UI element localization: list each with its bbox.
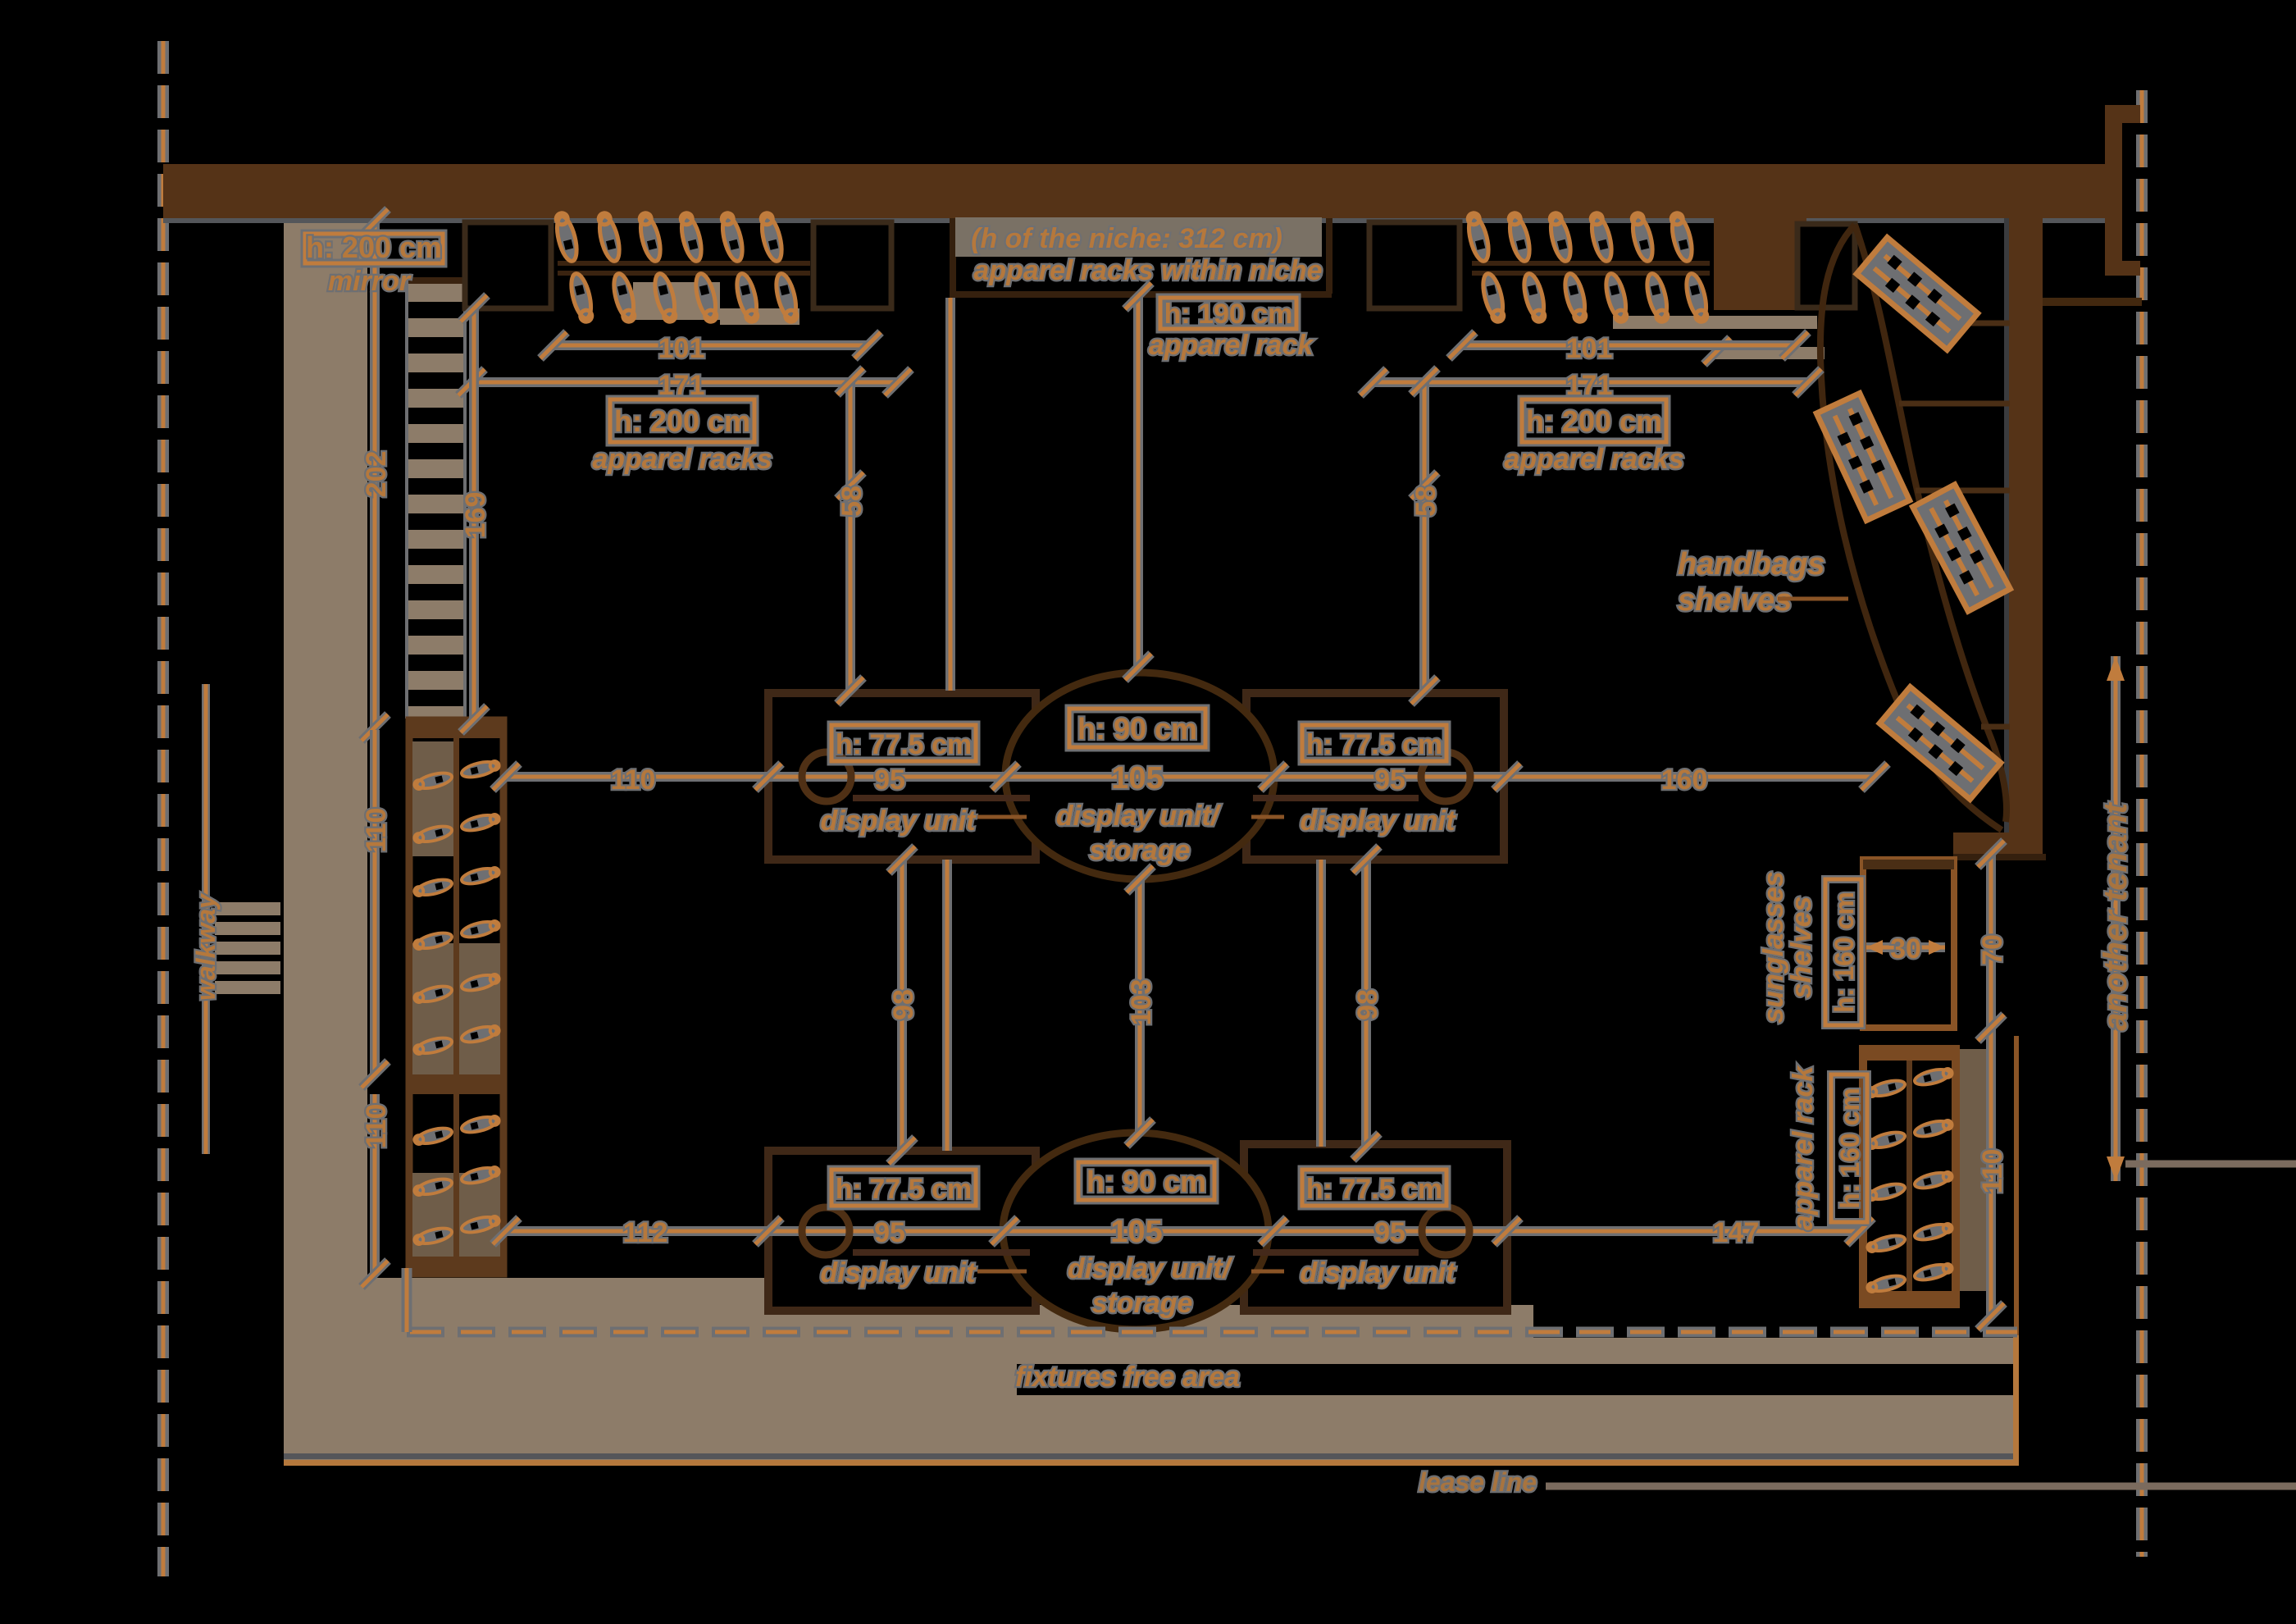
svg-text:110: 110 xyxy=(1977,1149,2008,1194)
svg-text:112: 112 xyxy=(623,1217,668,1248)
svg-text:202: 202 xyxy=(361,451,392,498)
svg-text:h: 77.5 cm: h: 77.5 cm xyxy=(836,729,972,760)
svg-text:h: 190 cm: h: 190 cm xyxy=(1164,299,1293,330)
svg-text:apparel racks: apparel racks xyxy=(1504,444,1683,475)
svg-text:lease line: lease line xyxy=(1419,1467,1537,1497)
svg-text:display unit: display unit xyxy=(1301,1257,1457,1289)
svg-text:storage: storage xyxy=(1092,1288,1193,1319)
svg-text:(h of the niche: 312 cm): (h of the niche: 312 cm) xyxy=(971,223,1282,254)
svg-text:apparel racks within niche: apparel racks within niche xyxy=(973,255,1322,286)
svg-text:sunglasses: sunglasses xyxy=(1758,871,1789,1023)
svg-text:h: 90 cm: h: 90 cm xyxy=(1077,712,1197,746)
svg-text:mirror: mirror xyxy=(328,266,412,297)
svg-text:169: 169 xyxy=(460,492,491,539)
svg-text:h: 200 cm: h: 200 cm xyxy=(306,230,442,264)
svg-text:shelves: shelves xyxy=(1786,896,1817,999)
svg-text:fixtures free area: fixtures free area xyxy=(1015,1362,1240,1393)
svg-text:160: 160 xyxy=(1661,764,1708,796)
svg-text:110: 110 xyxy=(361,1104,392,1149)
svg-text:shelves: shelves xyxy=(1678,583,1792,618)
svg-text:display unit/: display unit/ xyxy=(1056,801,1222,832)
svg-text:58: 58 xyxy=(836,486,868,517)
svg-text:h: 200 cm: h: 200 cm xyxy=(614,404,750,438)
svg-text:95: 95 xyxy=(1374,764,1405,796)
svg-text:h: 77.5 cm: h: 77.5 cm xyxy=(1306,1174,1442,1205)
svg-text:101: 101 xyxy=(1566,333,1613,364)
svg-text:h: 200 cm: h: 200 cm xyxy=(1526,404,1662,438)
svg-text:95: 95 xyxy=(874,1217,905,1248)
svg-text:110: 110 xyxy=(361,808,392,853)
svg-text:103: 103 xyxy=(1126,979,1157,1026)
svg-text:h: 77.5 cm: h: 77.5 cm xyxy=(1306,729,1442,760)
svg-text:h: 160 cm: h: 160 cm xyxy=(1835,1088,1865,1209)
svg-text:h: 160 cm: h: 160 cm xyxy=(1829,892,1859,1013)
svg-text:display unit: display unit xyxy=(821,1257,977,1289)
svg-text:apparel rack: apparel rack xyxy=(1149,330,1314,361)
svg-text:105: 105 xyxy=(1111,761,1163,796)
svg-text:101: 101 xyxy=(658,333,705,364)
svg-text:98: 98 xyxy=(888,989,919,1020)
svg-text:walkway: walkway xyxy=(191,892,221,1001)
svg-text:handbags: handbags xyxy=(1678,547,1824,582)
svg-text:apparel racks: apparel racks xyxy=(592,444,772,475)
svg-text:98: 98 xyxy=(1352,989,1383,1020)
svg-text:95: 95 xyxy=(874,764,905,796)
svg-text:147: 147 xyxy=(1713,1217,1760,1248)
svg-text:apparel rack: apparel rack xyxy=(1788,1065,1819,1230)
svg-text:display unit/: display unit/ xyxy=(1068,1253,1233,1284)
svg-text:95: 95 xyxy=(1374,1217,1405,1248)
svg-text:display unit: display unit xyxy=(1301,805,1457,837)
svg-text:display unit: display unit xyxy=(821,805,977,837)
svg-text:30: 30 xyxy=(1890,933,1921,965)
svg-text:another tenant: another tenant xyxy=(2098,801,2134,1030)
svg-text:storage: storage xyxy=(1090,835,1191,866)
svg-text:70: 70 xyxy=(1977,934,2008,965)
svg-text:h: 77.5 cm: h: 77.5 cm xyxy=(836,1174,972,1205)
svg-text:171: 171 xyxy=(1566,370,1613,401)
svg-text:171: 171 xyxy=(658,370,705,401)
svg-text:58: 58 xyxy=(1410,486,1442,517)
svg-text:110: 110 xyxy=(611,764,656,796)
svg-text:h: 90 cm: h: 90 cm xyxy=(1086,1165,1206,1198)
svg-text:105: 105 xyxy=(1110,1215,1162,1249)
